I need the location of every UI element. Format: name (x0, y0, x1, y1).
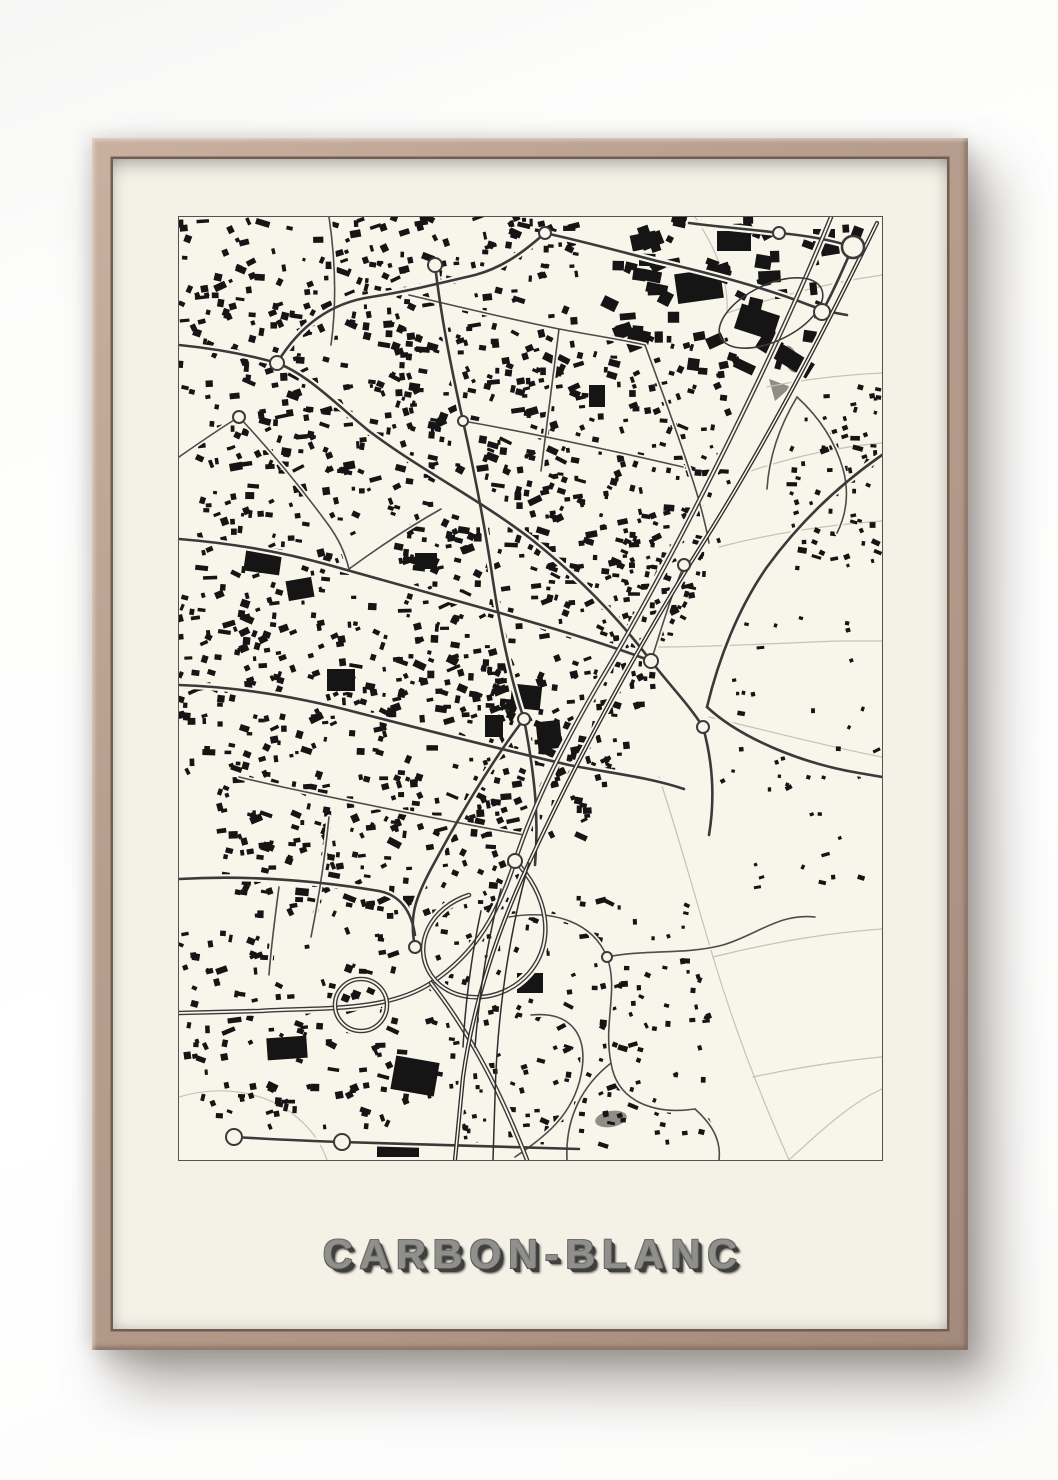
city-map (178, 216, 883, 1161)
poster-title: CARBON-BLANC (113, 1231, 947, 1278)
map-graphic (179, 217, 882, 1160)
poster-frame: CARBON-BLANC (92, 138, 968, 1350)
mat-board: CARBON-BLANC (113, 159, 947, 1329)
